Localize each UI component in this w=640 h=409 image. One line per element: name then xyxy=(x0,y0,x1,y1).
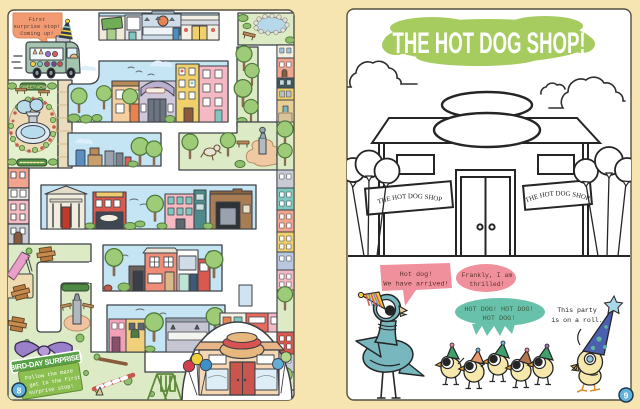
svg-text:This party: This party xyxy=(557,307,597,314)
svg-text:THE HOT DOG SHOP!: THE HOT DOG SHOP! xyxy=(392,27,585,61)
svg-text:8: 8 xyxy=(17,386,22,396)
svg-text:HOT DOG! HOT DOG!: HOT DOG! HOT DOG! xyxy=(464,306,533,314)
svg-text:is on a roll.: is on a roll. xyxy=(551,317,602,324)
svg-text:surprise stop!: surprise stop! xyxy=(14,23,61,30)
svg-text:Hot dog!: Hot dog! xyxy=(400,271,433,279)
svg-text:Frankly, I am: Frankly, I am xyxy=(462,272,513,279)
svg-text:Coming up!: Coming up! xyxy=(20,30,54,37)
svg-text:9: 9 xyxy=(624,391,629,401)
svg-text:First: First xyxy=(29,16,46,23)
svg-text:We have arrived!: We have arrived! xyxy=(383,281,448,289)
svg-text:HOT DOG!: HOT DOG! xyxy=(483,315,516,323)
svg-text:thrilled!: thrilled! xyxy=(469,281,504,288)
